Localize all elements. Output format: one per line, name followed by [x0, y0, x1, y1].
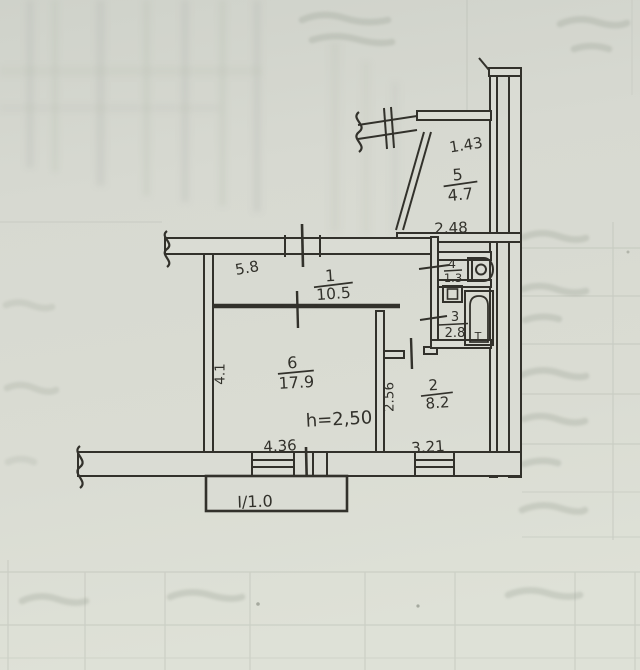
ceiling-height-note: h=2,50 [305, 407, 373, 431]
room-2-number: 2 [428, 376, 439, 395]
room-3-area: 2.8 [445, 326, 466, 341]
wall-left [204, 254, 213, 454]
room-3-number: 3 [451, 310, 459, 325]
loggia-outline [206, 476, 347, 511]
wall-room6-right [376, 311, 384, 452]
room-2-area: 8.2 [425, 393, 450, 413]
door-tick-room2 [411, 338, 412, 369]
door-tick-room6 [297, 291, 298, 328]
dim-room2-bottom: 3.21 [411, 437, 446, 457]
scanned-floor-plan-document: 1.43 5 4.7 2.48 5.8 1 10.5 4 1.3 3 2.8 T… [0, 0, 640, 670]
dim-balcony-length: 2.48 [434, 218, 468, 237]
room-5-number: 5 [452, 165, 464, 185]
dim-left-wall: 4.1 [213, 363, 229, 384]
loggia-label: I/1.0 [237, 491, 273, 511]
wall-balcony-top [417, 111, 491, 120]
wall-bath-left [431, 237, 438, 347]
room-6-area: 17.9 [278, 372, 315, 393]
wall-room2-top-left [384, 351, 404, 358]
room-4-area: 1.3 [444, 271, 462, 285]
room-5-area: 4.7 [447, 184, 474, 205]
ink-dot [314, 304, 317, 307]
dim-room6-bottom: 4.36 [263, 436, 297, 456]
room-1-number: 1 [324, 266, 335, 286]
ink-dot [280, 304, 283, 307]
wall-building-right [509, 68, 521, 477]
dim-room2-side: 2.56 [382, 382, 398, 412]
floor-plan-canvas: 1.43 5 4.7 2.48 5.8 1 10.5 4 1.3 3 2.8 T… [0, 0, 640, 670]
room-4-number: 4 [448, 256, 456, 271]
faucet-mark: T [474, 330, 482, 343]
room-6-number: 6 [287, 353, 298, 373]
wall-building-top-jog [489, 68, 521, 76]
room-1-area: 10.5 [316, 284, 352, 304]
